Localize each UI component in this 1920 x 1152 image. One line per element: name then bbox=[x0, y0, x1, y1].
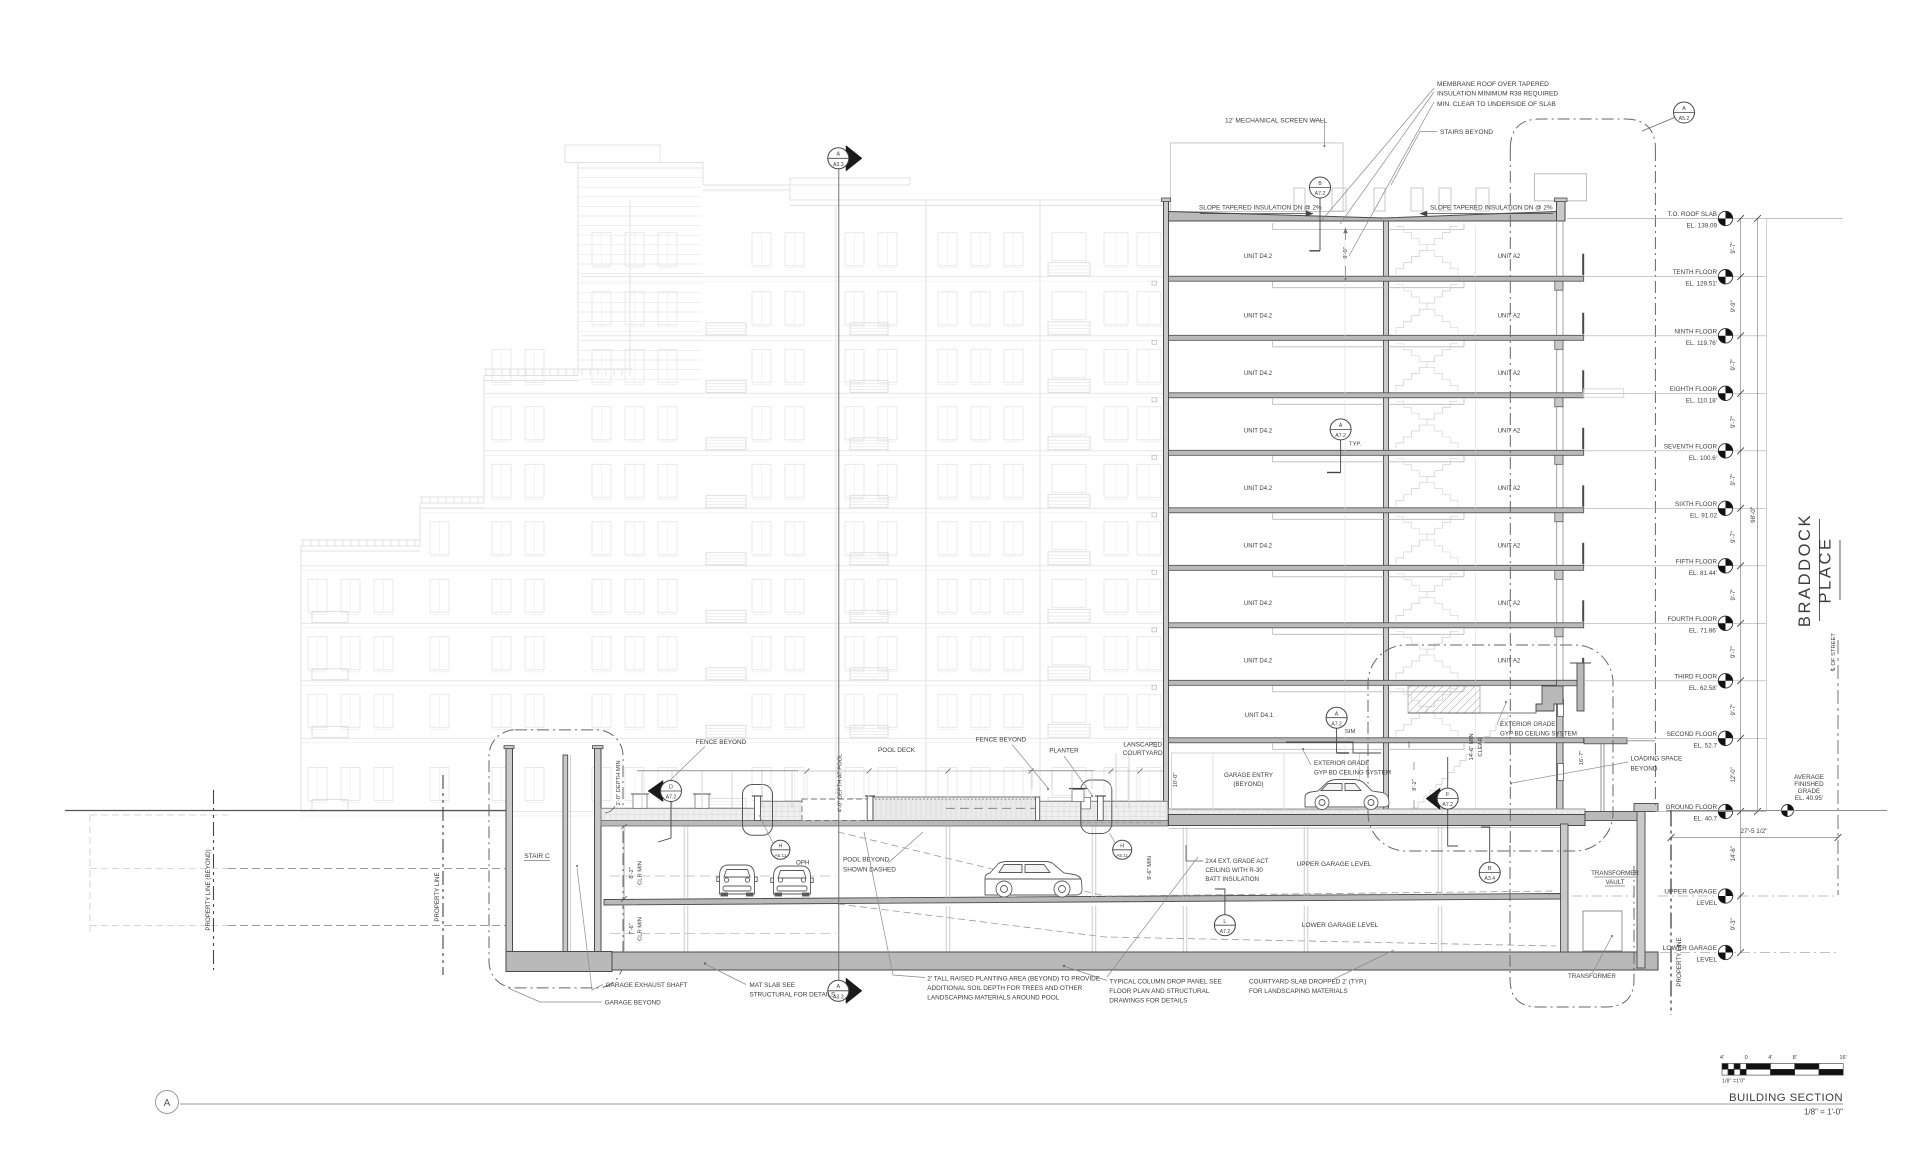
svg-text:SIXTH FLOOR: SIXTH FLOOR bbox=[1675, 501, 1717, 508]
svg-text:STAIR C: STAIR C bbox=[524, 853, 550, 860]
svg-text:PROPERTY LINE (BEYOND): PROPERTY LINE (BEYOND) bbox=[205, 849, 212, 930]
svg-text:EL. 40.7: EL. 40.7 bbox=[1694, 816, 1718, 823]
svg-text:SLOPE TAPERED INSULATION DN @: SLOPE TAPERED INSULATION DN @ 2% bbox=[1430, 205, 1553, 212]
svg-text:PROPERTY LINE: PROPERTY LINE bbox=[1676, 937, 1683, 986]
svg-text:UNIT D4.2: UNIT D4.2 bbox=[1244, 313, 1273, 319]
svg-text:UNIT D4.2: UNIT D4.2 bbox=[1244, 371, 1273, 377]
svg-text:16': 16' bbox=[1839, 1055, 1846, 1061]
svg-text:UNIT A2: UNIT A2 bbox=[1498, 254, 1521, 260]
svg-text:LANSCAPED: LANSCAPED bbox=[1123, 742, 1162, 749]
svg-text:CEILING WITH R-30: CEILING WITH R-30 bbox=[1205, 867, 1263, 874]
svg-text:SECOND FLOOR: SECOND FLOOR bbox=[1667, 731, 1718, 738]
svg-text:8'-2": 8'-2" bbox=[1412, 779, 1418, 791]
svg-text:EL. 110.18': EL. 110.18' bbox=[1686, 397, 1717, 404]
svg-text:EL. 119.76': EL. 119.76' bbox=[1686, 340, 1717, 347]
svg-text:OPH: OPH bbox=[796, 860, 809, 867]
svg-text:A: A bbox=[1339, 423, 1343, 429]
svg-text:UNIT A2: UNIT A2 bbox=[1498, 486, 1521, 492]
svg-text:4': 4' bbox=[1720, 1055, 1724, 1061]
svg-text:TRANSFORMER: TRANSFORMER bbox=[1591, 870, 1639, 877]
svg-text:POOL DECK: POOL DECK bbox=[878, 747, 916, 754]
svg-text:9'-7": 9'-7" bbox=[1731, 242, 1737, 254]
svg-text:FENCE BEYOND: FENCE BEYOND bbox=[696, 739, 747, 746]
svg-text:EL. 100.6': EL. 100.6' bbox=[1689, 455, 1717, 462]
svg-text:MEMBRANE ROOF OVER TAPERED: MEMBRANE ROOF OVER TAPERED bbox=[1437, 81, 1549, 88]
svg-text:98'-0": 98'-0" bbox=[1750, 507, 1757, 523]
svg-text:FLOOR PLAN AND STRUCTURAL: FLOOR PLAN AND STRUCTURAL bbox=[1109, 988, 1210, 995]
svg-text:UNIT D4.2: UNIT D4.2 bbox=[1244, 486, 1273, 492]
svg-text:UNIT A2: UNIT A2 bbox=[1498, 371, 1521, 377]
svg-text:UNIT D4.2: UNIT D4.2 bbox=[1244, 428, 1273, 434]
svg-text:BATT INSULATION: BATT INSULATION bbox=[1205, 876, 1259, 883]
svg-text:9'-7": 9'-7" bbox=[1731, 531, 1737, 543]
svg-text:PLACE: PLACE bbox=[1817, 536, 1835, 603]
svg-text:14'-6" MIN: 14'-6" MIN bbox=[1469, 733, 1475, 760]
svg-text:MAT SLAB SEE: MAT SLAB SEE bbox=[749, 982, 795, 989]
svg-text:EXTERIOR GRADE: EXTERIOR GRADE bbox=[1500, 721, 1555, 728]
svg-text:INSULATION MINIMUM R38 REQUIRE: INSULATION MINIMUM R38 REQUIRED bbox=[1437, 91, 1558, 98]
svg-text:27'-5 1/2": 27'-5 1/2" bbox=[1741, 828, 1768, 835]
svg-text:SEVENTH FLOOR: SEVENTH FLOOR bbox=[1664, 443, 1718, 450]
svg-text:GROUND FLOOR: GROUND FLOOR bbox=[1666, 804, 1718, 811]
svg-text:GYP BD CEILING SYSTEM: GYP BD CEILING SYSTEM bbox=[1314, 770, 1391, 777]
svg-text:UNIT D4.2: UNIT D4.2 bbox=[1244, 254, 1273, 260]
svg-text:A5.11: A5.11 bbox=[774, 853, 786, 858]
svg-text:UPPER GARAGE: UPPER GARAGE bbox=[1664, 889, 1717, 896]
svg-text:VAULT: VAULT bbox=[1605, 879, 1624, 886]
svg-text:2X4 EXT. GRADE ACT: 2X4 EXT. GRADE ACT bbox=[1205, 858, 1268, 865]
svg-text:GARAGE ENTRY: GARAGE ENTRY bbox=[1224, 772, 1273, 779]
svg-text:9'-3": 9'-3" bbox=[1731, 918, 1737, 930]
svg-text:TENTH FLOOR: TENTH FLOOR bbox=[1673, 269, 1718, 276]
svg-text:℄ OF STREET: ℄ OF STREET bbox=[1831, 633, 1837, 672]
svg-text:THIRD FLOOR: THIRD FLOOR bbox=[1674, 673, 1717, 680]
svg-text:EL. 91.02: EL. 91.02 bbox=[1690, 512, 1717, 519]
svg-text:BRADDOCK: BRADDOCK bbox=[1796, 513, 1814, 627]
svg-text:EL. 40.95': EL. 40.95' bbox=[1795, 795, 1823, 802]
svg-text:A: A bbox=[164, 1098, 171, 1109]
svg-text:9'-6" MIN: 9'-6" MIN bbox=[1147, 856, 1153, 880]
svg-text:COURTYARD: COURTYARD bbox=[1123, 750, 1163, 757]
svg-text:14'-6": 14'-6" bbox=[1731, 846, 1737, 861]
svg-text:LOWER GARAGE LEVEL: LOWER GARAGE LEVEL bbox=[1302, 922, 1379, 929]
svg-text:FOURTH FLOOR: FOURTH FLOOR bbox=[1667, 616, 1717, 623]
svg-text:L: L bbox=[1223, 919, 1226, 925]
svg-text:DRAWINGS FOR DETAILS: DRAWINGS FOR DETAILS bbox=[1109, 998, 1187, 1005]
svg-text:PROPERTY LINE: PROPERTY LINE bbox=[434, 872, 441, 921]
svg-text:SHOWN DASHED: SHOWN DASHED bbox=[843, 867, 896, 874]
svg-text:FOR LANDSCAPING MATERIALS: FOR LANDSCAPING MATERIALS bbox=[1249, 988, 1348, 995]
svg-text:9'-7": 9'-7" bbox=[1731, 359, 1737, 371]
svg-text:H: H bbox=[778, 844, 782, 850]
svg-text:A7.2: A7.2 bbox=[1442, 802, 1453, 808]
svg-text:PLANTER: PLANTER bbox=[1049, 748, 1079, 755]
svg-text:ADDITIONAL SOIL DEPTH FOR TREE: ADDITIONAL SOIL DEPTH FOR TREES AND OTHE… bbox=[927, 985, 1082, 992]
svg-text:GARAGE BEYOND: GARAGE BEYOND bbox=[605, 1000, 661, 1007]
svg-text:UNIT D4.2: UNIT D4.2 bbox=[1244, 658, 1273, 664]
svg-text:9'-7": 9'-7" bbox=[1731, 589, 1737, 601]
svg-text:(BEYOND): (BEYOND) bbox=[1233, 781, 1263, 788]
svg-text:EL. 139.09: EL. 139.09 bbox=[1687, 223, 1718, 230]
svg-text:BEYOND: BEYOND bbox=[1631, 766, 1658, 773]
svg-text:UNIT D4.1: UNIT D4.1 bbox=[1245, 713, 1274, 719]
svg-text:9'-0": 9'-0" bbox=[1343, 247, 1349, 259]
svg-text:A3.3: A3.3 bbox=[833, 162, 844, 168]
svg-text:EL. 52.7: EL. 52.7 bbox=[1694, 742, 1718, 749]
svg-text:LEVEL: LEVEL bbox=[1696, 957, 1717, 964]
svg-text:A: A bbox=[836, 152, 840, 158]
svg-text:16'-7": 16'-7" bbox=[1579, 751, 1585, 766]
svg-text:BUILDING SECTION: BUILDING SECTION bbox=[1729, 1092, 1843, 1104]
svg-text:B: B bbox=[1488, 866, 1492, 872]
svg-text:UNIT A2: UNIT A2 bbox=[1498, 658, 1521, 664]
svg-text:A7.2: A7.2 bbox=[1335, 433, 1346, 439]
svg-text:COURTYARD SLAB DROPPED 2' (TY: COURTYARD SLAB DROPPED 2' (TYP.) bbox=[1249, 979, 1366, 986]
svg-text:CLR MIN: CLR MIN bbox=[638, 917, 644, 941]
svg-text:LANDSCAPING MATERIALS AROUND P: LANDSCAPING MATERIALS AROUND POOL bbox=[927, 995, 1059, 1002]
svg-text:MIN. CLEAR TO UNDERSIDE OF SLA: MIN. CLEAR TO UNDERSIDE OF SLAB bbox=[1437, 101, 1556, 108]
svg-text:H: H bbox=[1120, 844, 1124, 850]
svg-text:EL. 81.44': EL. 81.44' bbox=[1689, 570, 1717, 577]
svg-text:4': 4' bbox=[1768, 1055, 1772, 1061]
svg-text:GARAGE EXHAUST SHAFT: GARAGE EXHAUST SHAFT bbox=[606, 982, 688, 989]
svg-text:A7.2: A7.2 bbox=[666, 795, 677, 801]
svg-text:UNIT D4.2: UNIT D4.2 bbox=[1244, 543, 1273, 549]
svg-text:CLR MIN: CLR MIN bbox=[638, 861, 644, 885]
svg-text:A7.2: A7.2 bbox=[1331, 721, 1342, 727]
svg-text:UNIT D4.2: UNIT D4.2 bbox=[1244, 601, 1273, 607]
svg-text:GRADE: GRADE bbox=[1798, 788, 1820, 795]
svg-text:10'-0": 10'-0" bbox=[1173, 773, 1179, 788]
svg-text:B: B bbox=[1318, 181, 1322, 187]
svg-text:UNIT A2: UNIT A2 bbox=[1498, 543, 1521, 549]
svg-text:A5.2: A5.2 bbox=[1679, 116, 1690, 122]
svg-text:12'-0": 12'-0" bbox=[1731, 767, 1737, 782]
svg-text:A: A bbox=[1335, 711, 1339, 717]
svg-text:12' MECHANICAL SCREEN WALL: 12' MECHANICAL SCREEN WALL bbox=[1225, 118, 1328, 125]
svg-text:TYP.: TYP. bbox=[1349, 442, 1362, 448]
svg-text:4'-0" DEPTH AT POOL: 4'-0" DEPTH AT POOL bbox=[838, 753, 844, 812]
svg-text:FINISHED: FINISHED bbox=[1794, 781, 1824, 788]
svg-text:LOADING SPACE: LOADING SPACE bbox=[1631, 756, 1683, 763]
svg-text:9'-7": 9'-7" bbox=[1731, 704, 1737, 716]
svg-text:A7.2: A7.2 bbox=[1220, 929, 1231, 935]
svg-text:8': 8' bbox=[1793, 1055, 1797, 1061]
svg-text:UNIT A2: UNIT A2 bbox=[1498, 313, 1521, 319]
svg-text:EL. 62.58': EL. 62.58' bbox=[1689, 685, 1717, 692]
svg-text:2' TALL RAISED PLANTING AREA (: 2' TALL RAISED PLANTING AREA (BEYOND) TO… bbox=[927, 976, 1100, 983]
svg-text:FIFTH FLOOR: FIFTH FLOOR bbox=[1676, 558, 1718, 565]
svg-text:AVERAGE: AVERAGE bbox=[1794, 774, 1824, 781]
svg-text:FENCE BEYOND: FENCE BEYOND bbox=[976, 737, 1027, 744]
svg-text:7'-6": 7'-6" bbox=[629, 923, 635, 935]
svg-text:CLEAR: CLEAR bbox=[1478, 737, 1484, 756]
svg-text:UNIT A2: UNIT A2 bbox=[1498, 428, 1521, 434]
svg-text:9'-7": 9'-7" bbox=[1731, 474, 1737, 486]
svg-text:EL. 129.51': EL. 129.51' bbox=[1685, 281, 1717, 288]
svg-text:NINTH FLOOR: NINTH FLOOR bbox=[1674, 328, 1717, 335]
svg-text:0: 0 bbox=[1745, 1055, 1748, 1061]
svg-text:GYP BD CEILING SYSTEM: GYP BD CEILING SYSTEM bbox=[1500, 731, 1577, 738]
svg-text:STAIRS BEYOND: STAIRS BEYOND bbox=[1440, 129, 1493, 136]
svg-text:A3.4: A3.4 bbox=[1484, 876, 1495, 882]
svg-text:A: A bbox=[1682, 106, 1686, 112]
svg-text:EXTERIOR GRADE: EXTERIOR GRADE bbox=[1314, 760, 1369, 767]
svg-text:9'-7": 9'-7" bbox=[1731, 646, 1737, 658]
svg-text:UNIT A2: UNIT A2 bbox=[1498, 601, 1521, 607]
svg-text:A5.11: A5.11 bbox=[1116, 853, 1128, 858]
svg-text:SLOPE TAPERED INSULATION DN @: SLOPE TAPERED INSULATION DN @ 2% bbox=[1199, 205, 1322, 212]
svg-text:A: A bbox=[836, 984, 840, 990]
svg-text:2'-0" DEPTH MIN: 2'-0" DEPTH MIN bbox=[616, 760, 622, 805]
svg-text:STRUCTURAL FOR DETAILS: STRUCTURAL FOR DETAILS bbox=[749, 992, 835, 999]
svg-text:UPPER GARAGE LEVEL: UPPER GARAGE LEVEL bbox=[1296, 861, 1371, 868]
svg-text:9'-9": 9'-9" bbox=[1731, 300, 1737, 312]
svg-text:SIM: SIM bbox=[1345, 729, 1355, 735]
svg-text:POOL BEYOND: POOL BEYOND bbox=[843, 857, 890, 864]
svg-text:TYPICAL COLUMN DROP PANEL SEE: TYPICAL COLUMN DROP PANEL SEE bbox=[1109, 979, 1222, 986]
svg-text:1/8" =1'0": 1/8" =1'0" bbox=[1722, 1079, 1745, 1085]
svg-text:LEVEL: LEVEL bbox=[1696, 900, 1717, 907]
svg-text:EL. 71.86': EL. 71.86' bbox=[1689, 627, 1717, 634]
svg-text:D: D bbox=[669, 785, 673, 791]
svg-text:8'-2": 8'-2" bbox=[629, 867, 635, 879]
svg-text:T.O. ROOF SLAB: T.O. ROOF SLAB bbox=[1668, 211, 1717, 218]
svg-text:A7.2: A7.2 bbox=[1315, 191, 1326, 197]
svg-text:1/8" = 1'-0": 1/8" = 1'-0" bbox=[1804, 1108, 1843, 1117]
svg-text:EIGHTH FLOOR: EIGHTH FLOOR bbox=[1670, 386, 1718, 393]
svg-text:9'-7": 9'-7" bbox=[1731, 416, 1737, 428]
